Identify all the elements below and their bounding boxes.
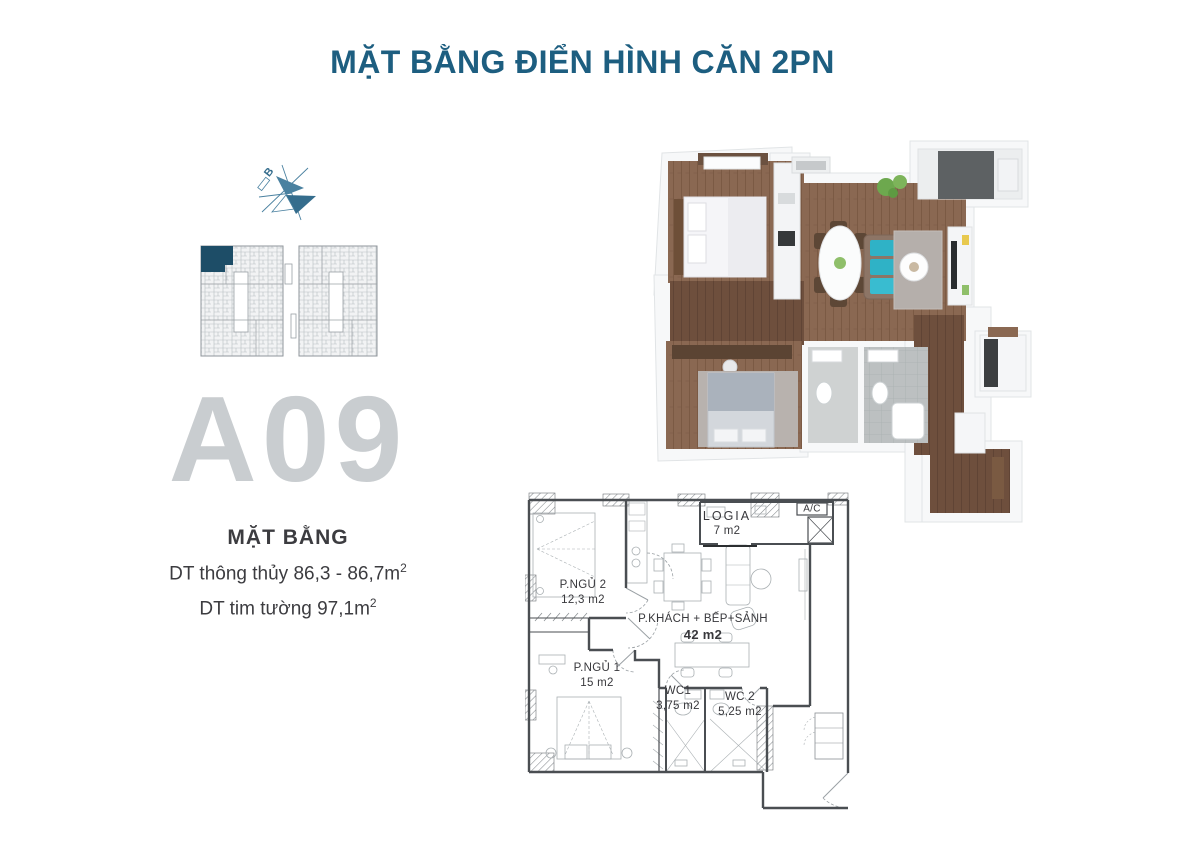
floorplan-2d-drawing: LOGIA 7 m2 A/C P.NGỦ 2 12,3 m2 P.KHÁCH +… bbox=[525, 487, 860, 832]
door-arcs bbox=[613, 553, 848, 808]
left-panel: B bbox=[147, 162, 429, 621]
room-label-logia: LOGIA 7 m2 bbox=[703, 509, 751, 539]
room-label-living: P.KHÁCH + BẾP+SẢNH 42 m2 bbox=[638, 612, 768, 642]
page: MẶT BẰNG ĐIỂN HÌNH CĂN 2PN B bbox=[0, 0, 1187, 856]
room-label-bedroom1: P.NGỦ 1 15 m2 bbox=[574, 661, 621, 691]
unit-code: A09 bbox=[169, 378, 408, 500]
floorplan-heading: MẶT BẰNG bbox=[227, 526, 348, 550]
room-label-wc2: WC 2 5,25 m2 bbox=[718, 690, 762, 720]
net-area-sup: 2 bbox=[400, 561, 407, 575]
walls-2d bbox=[529, 500, 848, 808]
room-label-ac: A/C bbox=[803, 502, 821, 517]
room-label-bedroom2: P.NGỦ 2 12,3 m2 bbox=[560, 578, 607, 608]
floorplan-3d-render bbox=[642, 135, 1062, 530]
room-label-wc1: WC1 3,75 m2 bbox=[656, 684, 700, 714]
net-area-line: DT thông thủy 86,3 - 86,7m2 bbox=[169, 561, 407, 585]
keyplan-thumbnail bbox=[196, 244, 380, 366]
gross-area-text: DT tim tường 97,1m bbox=[199, 599, 370, 620]
logo-letter: B bbox=[262, 166, 276, 180]
page-title: MẶT BẰNG ĐIỂN HÌNH CĂN 2PN bbox=[0, 44, 1165, 81]
tv-unit-3d bbox=[948, 227, 972, 305]
gross-area-sup: 2 bbox=[370, 596, 377, 610]
bathrooms-3d bbox=[808, 347, 928, 443]
gross-area-line: DT tim tường 97,1m2 bbox=[199, 596, 376, 620]
keyplan-right-tower bbox=[299, 246, 377, 356]
net-area-text: DT thông thủy 86,3 - 86,7m bbox=[169, 563, 400, 584]
origami-bird-logo-icon: B bbox=[256, 162, 320, 226]
